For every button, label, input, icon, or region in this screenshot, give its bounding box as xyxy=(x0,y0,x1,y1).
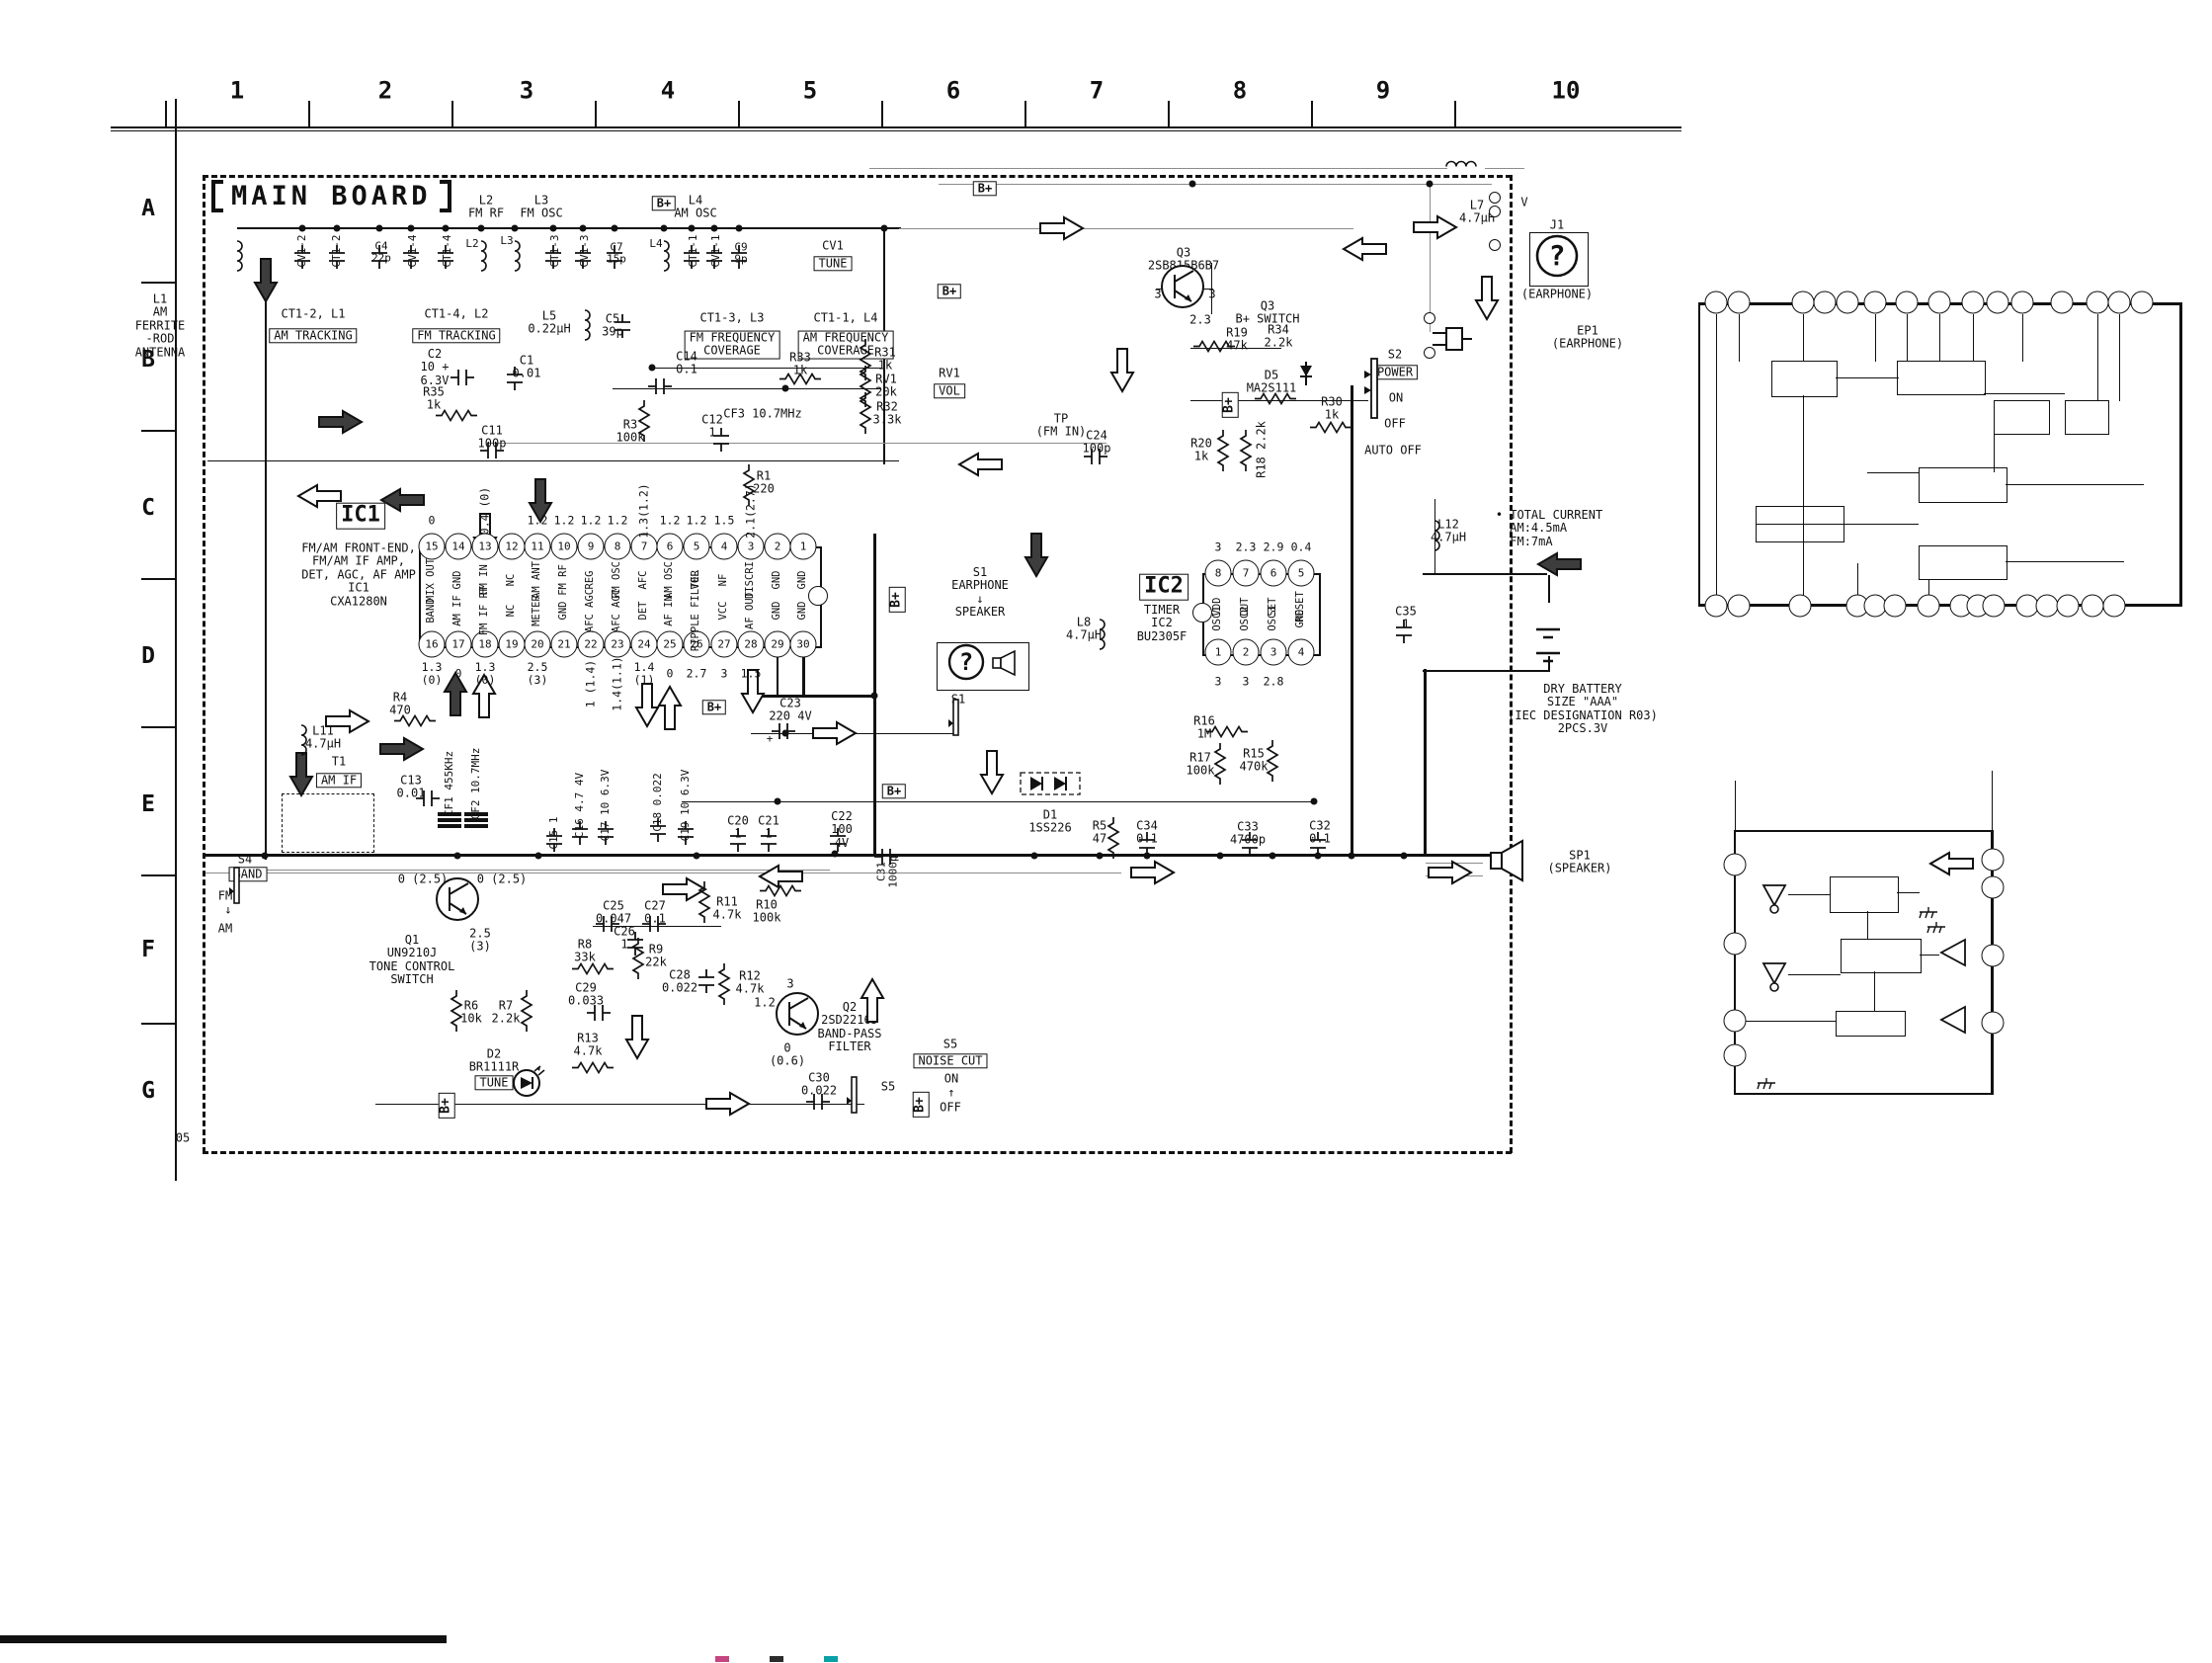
resistor xyxy=(1106,816,1120,864)
block-diagram-pin xyxy=(1814,291,1837,314)
label-off: OFF xyxy=(940,1101,961,1114)
ruler-col-number: 10 xyxy=(1552,78,1581,105)
ic2-description: TIMER IC2 BU2305F xyxy=(1137,604,1188,643)
block-diagram-pin xyxy=(1982,945,2005,967)
capacitor xyxy=(506,367,524,394)
label-ct1-1-l4: CT1-1, L4 xyxy=(813,311,877,324)
flow-arrow xyxy=(975,750,1005,795)
block-diagram-pin xyxy=(1918,595,1940,618)
capacitor xyxy=(544,245,562,273)
inductor-coil xyxy=(1445,159,1479,178)
block-diagram-pin xyxy=(1705,595,1728,618)
block-diagram-pin xyxy=(2108,291,2131,314)
ic-notch-ic2 xyxy=(1192,603,1212,623)
junction-dot xyxy=(1217,853,1224,860)
block-diagram-block xyxy=(1771,361,1838,397)
capacitor xyxy=(1138,832,1156,860)
ic-pin-voltage: 1.5 xyxy=(714,515,735,528)
junction-dot xyxy=(1031,853,1038,860)
wire xyxy=(1867,472,1919,473)
wire xyxy=(1984,393,2065,394)
ic-pin-name: GND xyxy=(772,602,783,621)
wire xyxy=(1739,314,1740,362)
wire xyxy=(1735,1021,1836,1022)
label-t1: T1 xyxy=(332,755,346,768)
ic-pin-voltage: 0 xyxy=(455,668,462,681)
flow-arrow xyxy=(630,683,660,728)
ic-pin-name: FM RF xyxy=(558,564,570,596)
ic-pin-name: AM ANT xyxy=(532,561,543,599)
label-c2: C2 10 + 6.3V xyxy=(421,348,450,387)
label-ct1-4-l2: CT1-4, L2 xyxy=(424,307,488,320)
capacitor xyxy=(874,848,898,870)
board-title-text: MAIN BOARD xyxy=(229,180,434,212)
wire xyxy=(1907,314,1908,362)
wire xyxy=(1994,433,1995,472)
flow-arrow xyxy=(812,720,858,750)
ic-pin-voltage: 1.2 xyxy=(608,515,628,528)
resistor xyxy=(571,1060,614,1079)
ic-pin-voltage: 1.5 xyxy=(741,668,762,681)
inductor-coil xyxy=(474,240,488,278)
inductor-coil xyxy=(657,240,671,278)
capacitor xyxy=(451,369,474,390)
inductor-coil xyxy=(1428,520,1441,557)
ic-pin-voltage: 2.7 xyxy=(687,668,707,681)
ic-pin-ic1-14: 14 xyxy=(446,534,472,560)
label-sp1: SP1 (SPEAKER) xyxy=(1547,850,1611,876)
ic-pin-voltage: 0.4 (0) xyxy=(479,487,492,535)
label-0-2-5-: 0 (2.5) xyxy=(477,873,528,885)
wire xyxy=(1548,575,1550,603)
ruler-row-letter: D xyxy=(141,644,155,670)
capacitor xyxy=(705,245,723,273)
flow-arrow xyxy=(657,685,687,730)
ic-pin-ic1-24: 24 xyxy=(631,631,658,658)
flow-arrow xyxy=(1928,847,1974,876)
label-05: 05 xyxy=(176,1131,190,1144)
ic-pin-voltage: 2.5 (3) xyxy=(528,661,548,687)
label-3: 3 xyxy=(1208,288,1215,300)
buffer-gate xyxy=(1935,1005,1969,1039)
flow-arrow xyxy=(1020,533,1049,578)
ruler-col-tick xyxy=(451,101,453,127)
ic-pin-ic1-16: 16 xyxy=(419,631,446,658)
flow-arrow xyxy=(379,736,425,766)
wire xyxy=(203,175,208,1153)
ic-pin-voltage: 1.2 xyxy=(660,515,681,528)
ic-pin-ic1-6: 6 xyxy=(657,534,684,560)
junction-dot xyxy=(612,225,618,232)
wire xyxy=(1874,971,1875,1011)
wire xyxy=(1734,830,1993,832)
ic-pin-ic1-11: 11 xyxy=(525,534,551,560)
label-s5: S5 xyxy=(881,1080,895,1093)
label-s1: S1 EARPHONE ↓ SPEAKER xyxy=(951,566,1009,620)
ic-pin-name: GND xyxy=(1295,610,1307,628)
title-bracket-right xyxy=(440,180,451,212)
label-on: ON xyxy=(1389,391,1403,404)
ic-pin-name: GND xyxy=(797,602,809,621)
label-b+: B+ xyxy=(938,284,961,298)
block-diagram-pin xyxy=(1982,1012,2005,1035)
ic-pin-name: METER xyxy=(532,595,543,626)
block-diagram-pin xyxy=(1983,595,2006,618)
label-cf3-10-7mhz: CF3 10.7MHz xyxy=(723,407,801,420)
block-diagram-pin xyxy=(1884,595,1907,618)
ic-pin-ic1-29: 29 xyxy=(765,631,791,658)
resistor xyxy=(1192,339,1236,358)
block-diagram-pin xyxy=(1724,854,1747,876)
wire xyxy=(1423,573,1547,575)
wire xyxy=(1836,377,1899,378)
flow-arrow xyxy=(1106,348,1135,393)
flow-arrow xyxy=(325,708,370,738)
junction-dot xyxy=(711,225,718,232)
wire xyxy=(899,228,1353,229)
flow-arrow xyxy=(296,479,342,509)
block-diagram-pin xyxy=(1864,291,1887,314)
junction-dot xyxy=(1427,181,1434,188)
ic-pin-name: AF IN xyxy=(664,595,676,626)
junction-dot xyxy=(661,225,668,232)
block-diagram-pin xyxy=(1962,291,1985,314)
inverter-gate xyxy=(1760,883,1789,921)
ic-pin-name: AFC AGC xyxy=(585,589,597,632)
ic-pin-name: NF xyxy=(718,574,730,587)
ic-pin-name: OSC3 xyxy=(1268,606,1279,630)
ic-pin-ic2-3: 3 xyxy=(1261,639,1287,666)
ruler-col-number: 1 xyxy=(230,78,244,105)
label-rv1: RV1 20k xyxy=(875,374,897,400)
inductor-coil xyxy=(230,240,244,278)
capacitor xyxy=(545,828,563,856)
ic-pin-ic1-20: 20 xyxy=(525,631,551,658)
wire xyxy=(1875,314,1876,362)
label-v: V xyxy=(1520,196,1527,208)
ic-pin-ic1-4: 4 xyxy=(711,534,738,560)
block-diagram-pin xyxy=(1724,1044,1747,1067)
label-c28: C28 0.022 xyxy=(662,969,697,996)
ruler-col-number: 7 xyxy=(1090,78,1104,105)
ic-pin-voltage: 0.4 xyxy=(1291,541,1312,554)
ruler-col-number: 8 xyxy=(1233,78,1247,105)
block-diagram-pin xyxy=(2011,291,2034,314)
ic-pin-name: OSC2 xyxy=(1240,606,1252,630)
wire xyxy=(2179,302,2182,606)
label-b+: B+ xyxy=(702,700,726,714)
block-diagram-block xyxy=(1836,1011,1906,1037)
block-diagram-pin xyxy=(1728,595,1751,618)
ic-pin-ic1-10: 10 xyxy=(551,534,578,560)
ruler-col-tick xyxy=(165,101,167,127)
label-s5: S5 xyxy=(943,1038,957,1050)
label-l1: L1 AM FERRITE -ROD ANTENNA xyxy=(135,292,186,359)
ic-pin-voltage: 1.2 xyxy=(687,515,707,528)
outline-box xyxy=(1529,232,1589,287)
ruler-col-number: 4 xyxy=(661,78,675,105)
ic-pin-voltage: 2.1(2.7) xyxy=(745,483,758,538)
label-ep1: EP1 (EARPHONE) xyxy=(1552,325,1623,352)
label-q1: Q1 UN9210J TONE CONTROL SWITCH xyxy=(369,934,455,987)
junction-dot xyxy=(1401,853,1408,860)
label-cf2-10-7mhz: CF2 10.7MHz xyxy=(470,748,482,820)
junction-dot xyxy=(454,853,461,860)
resistor xyxy=(520,989,533,1037)
block-diagram-pin xyxy=(2051,291,2074,314)
block-diagram-block xyxy=(1841,939,1922,973)
ic-pin-name: REG xyxy=(585,571,597,590)
capacitor xyxy=(729,828,747,856)
npn-transistor xyxy=(433,874,482,928)
diode xyxy=(1296,362,1316,389)
capacitor xyxy=(480,442,504,463)
junction-dot xyxy=(649,365,656,372)
block-diagram-block xyxy=(1756,506,1844,542)
inductor-coil xyxy=(294,724,308,762)
registration-mark xyxy=(824,1656,838,1662)
capacitor xyxy=(730,245,748,273)
label-cf1-455khz: CF1 455KHz xyxy=(444,751,455,816)
resistor xyxy=(697,880,711,928)
junction-dot xyxy=(1097,853,1104,860)
label-tune: TUNE xyxy=(475,1075,514,1090)
flow-arrow xyxy=(1130,860,1176,889)
wire xyxy=(2022,314,2023,362)
ic-pin-ic1-12: 12 xyxy=(499,534,526,560)
block-diagram-pin xyxy=(2057,595,2080,618)
ic-pin-ic1-25: 25 xyxy=(657,631,684,658)
ic-pin-voltage: 1.4(1.1) xyxy=(612,656,624,710)
junction-dot xyxy=(871,693,878,700)
label-dry-battery: DRY BATTERY SIZE "AAA" (IEC DESIGNATION … xyxy=(1508,683,1658,736)
ic-pin-ic1-30: 30 xyxy=(790,631,817,658)
ic-pin-voltage: 1 (1.4) xyxy=(585,660,598,707)
resistor xyxy=(1213,742,1227,790)
label-ct1-2-l1: CT1-2, L1 xyxy=(281,307,345,320)
block-diagram-pin xyxy=(1982,849,2005,872)
block-diagram-pin xyxy=(1724,1010,1747,1033)
ruler-col-tick xyxy=(1168,101,1170,127)
inverter-gate xyxy=(1760,961,1789,999)
capacitor xyxy=(574,245,592,273)
ic-pin-name: NC xyxy=(506,574,518,587)
capacitor xyxy=(416,790,440,811)
dual-diode xyxy=(1019,769,1082,802)
label-r12: R12 4.7k xyxy=(736,970,765,997)
block-diagram-pin xyxy=(2103,595,2126,618)
ic-pin-ic2-1: 1 xyxy=(1205,639,1232,666)
ruler-col-tick xyxy=(1311,101,1313,127)
outline-box xyxy=(282,793,374,853)
label-r31: R31 1k xyxy=(874,347,896,374)
block-diagram-pin xyxy=(1705,291,1728,314)
flow-arrow xyxy=(705,1091,751,1121)
resistor xyxy=(778,372,822,390)
npn-transistor xyxy=(773,989,822,1042)
flow-arrow xyxy=(1413,214,1458,244)
wire xyxy=(1351,385,1353,856)
resistor xyxy=(859,391,872,439)
ic-pin-ic2-4: 4 xyxy=(1288,639,1315,666)
wire xyxy=(203,175,1512,181)
label-r32: R32 3.3k xyxy=(873,401,902,428)
resistor xyxy=(435,408,478,427)
ic-pin-ic2-5: 5 xyxy=(1288,560,1315,587)
speaker-icon xyxy=(1487,839,1530,886)
resistor xyxy=(1239,429,1253,476)
wire xyxy=(175,99,177,1181)
capacitor xyxy=(772,722,795,744)
label-r18-2-2k: R18 2.2k xyxy=(1255,421,1268,478)
connector-circle xyxy=(1489,239,1501,251)
label-s4: S4 xyxy=(238,853,252,866)
ic1-description: FM/AM FRONT-END, FM/AM IF AMP, DET, AGC,… xyxy=(301,541,416,608)
label-r9: R9 22k xyxy=(645,944,667,970)
block-diagram-pin xyxy=(1987,291,2009,314)
ruler-row-tick xyxy=(141,726,176,728)
junction-dot xyxy=(736,225,743,232)
junction-dot xyxy=(443,225,450,232)
inductor-coil xyxy=(1093,619,1106,656)
wire xyxy=(1716,314,1717,601)
ic-pin-name: AF OUT xyxy=(745,592,757,629)
wire xyxy=(2006,561,2124,562)
wire xyxy=(1510,175,1516,1153)
ic-pin-voltage: 3 xyxy=(1243,676,1250,689)
label-vol: VOL xyxy=(934,383,965,398)
ic-pin-voltage: 0 xyxy=(429,515,436,528)
label-r10: R10 100k xyxy=(753,899,781,926)
schematic-page: MAIN BOARD 12345678910ABCDEFGL1 AM FERRI… xyxy=(0,0,2212,1663)
ruler-col-number: 5 xyxy=(803,78,817,105)
block-diagram-pin xyxy=(1928,291,1951,314)
wire xyxy=(1423,670,1549,672)
wire xyxy=(1939,314,1940,362)
ic-pin-ic1-15: 15 xyxy=(419,534,446,560)
ceramic-filter xyxy=(437,810,462,834)
ic-pin-name: BAND xyxy=(426,598,438,623)
block-diagram-pin xyxy=(1724,933,1747,956)
wire xyxy=(203,873,1121,873)
block-diagram-block xyxy=(1994,400,2050,435)
resistor xyxy=(759,883,802,902)
ic-pin-voltage: 1.2 xyxy=(581,515,602,528)
wire xyxy=(1788,974,1841,975)
flow-arrow xyxy=(957,448,1003,477)
ic1-tag: IC1 xyxy=(336,503,385,530)
ic-pin-name: AM IF xyxy=(452,595,464,626)
junction-dot xyxy=(299,225,306,232)
block-diagram-pin xyxy=(1837,291,1859,314)
resistor xyxy=(393,713,437,732)
ic-pin-voltage: 2.3 xyxy=(1236,541,1257,554)
ic-pin-ic2-8: 8 xyxy=(1205,560,1232,587)
label-j1: J1 xyxy=(1550,218,1564,231)
ic-pin-ic1-13: 13 xyxy=(472,534,499,560)
flow-arrow xyxy=(379,483,425,513)
block-diagram-pin xyxy=(1982,876,2005,899)
ruler-row-letter: A xyxy=(141,197,155,222)
junction-dot xyxy=(376,225,383,232)
label-off: OFF xyxy=(1384,417,1406,430)
board-title: MAIN BOARD xyxy=(211,180,451,212)
ruler-row-letter: F xyxy=(141,938,155,963)
ic-pin-ic1-28: 28 xyxy=(738,631,765,658)
ruler-row-tick xyxy=(141,430,176,432)
ic-pin-voltage: 3 xyxy=(1215,676,1222,689)
ic-pin-voltage: 0 xyxy=(667,668,674,681)
wire xyxy=(939,184,1492,185)
wire xyxy=(237,870,830,871)
wire xyxy=(2119,314,2120,401)
switch-lever xyxy=(1363,357,1383,424)
resistor xyxy=(717,962,731,1010)
capacitor xyxy=(328,245,346,273)
capacitor xyxy=(648,377,672,399)
junction-dot xyxy=(478,225,485,232)
capacitor xyxy=(614,314,631,342)
registration-mark xyxy=(770,1656,783,1662)
capacitor xyxy=(1084,448,1107,469)
label-r13: R13 4.7k xyxy=(574,1033,603,1059)
ruler-col-number: 9 xyxy=(1376,78,1390,105)
ic-pin-name: NC xyxy=(506,605,518,618)
ic-pin-name: GND xyxy=(452,571,464,590)
wire xyxy=(1698,302,1700,606)
wire xyxy=(1973,314,1974,362)
capacitor xyxy=(587,1004,611,1026)
wire xyxy=(1867,911,1868,939)
label-fm-tracking: FM TRACKING xyxy=(412,328,500,343)
wire xyxy=(1803,395,1804,603)
label-on: ON xyxy=(944,1072,958,1085)
ruler-col-tick xyxy=(881,101,883,127)
ic-pin-ic2-6: 6 xyxy=(1261,560,1287,587)
title-bracket-left xyxy=(211,180,223,212)
capacitor xyxy=(806,1093,830,1115)
capacitor xyxy=(712,428,730,456)
capacitor xyxy=(597,821,614,849)
ic-pin-voltage: 3 xyxy=(721,668,728,681)
ic-pin-ic1-2: 2 xyxy=(765,534,791,560)
label--: ↑ xyxy=(947,1086,954,1099)
label-0: 0 (0.6) xyxy=(770,1042,805,1069)
capacitor xyxy=(571,821,589,849)
ic-pin-name: RIPPLE FILTER xyxy=(691,570,702,651)
wire xyxy=(0,1635,447,1643)
flow-arrow xyxy=(249,258,279,303)
block-diagram-block xyxy=(1919,545,2007,580)
label-auto-off: AUTO OFF xyxy=(1364,444,1422,457)
ic-pin-ic1-23: 23 xyxy=(605,631,631,658)
capacitor xyxy=(437,245,454,273)
junction-dot xyxy=(1311,798,1318,805)
ic-pin-voltage: 3 xyxy=(1215,541,1222,554)
capacitor xyxy=(1395,620,1413,647)
ic-pin-name: DET xyxy=(638,602,650,621)
flow-arrow xyxy=(1039,215,1085,245)
label-b+: B+ xyxy=(973,181,997,196)
junction-dot xyxy=(262,853,269,860)
connector-circle xyxy=(1489,206,1501,217)
inductor-coil xyxy=(578,309,592,347)
label-b+: B+ xyxy=(439,1093,455,1119)
flow-arrow xyxy=(318,409,364,439)
wire xyxy=(1430,184,1431,332)
block-diagram-pin xyxy=(1896,291,1919,314)
junction-dot xyxy=(1189,181,1196,188)
